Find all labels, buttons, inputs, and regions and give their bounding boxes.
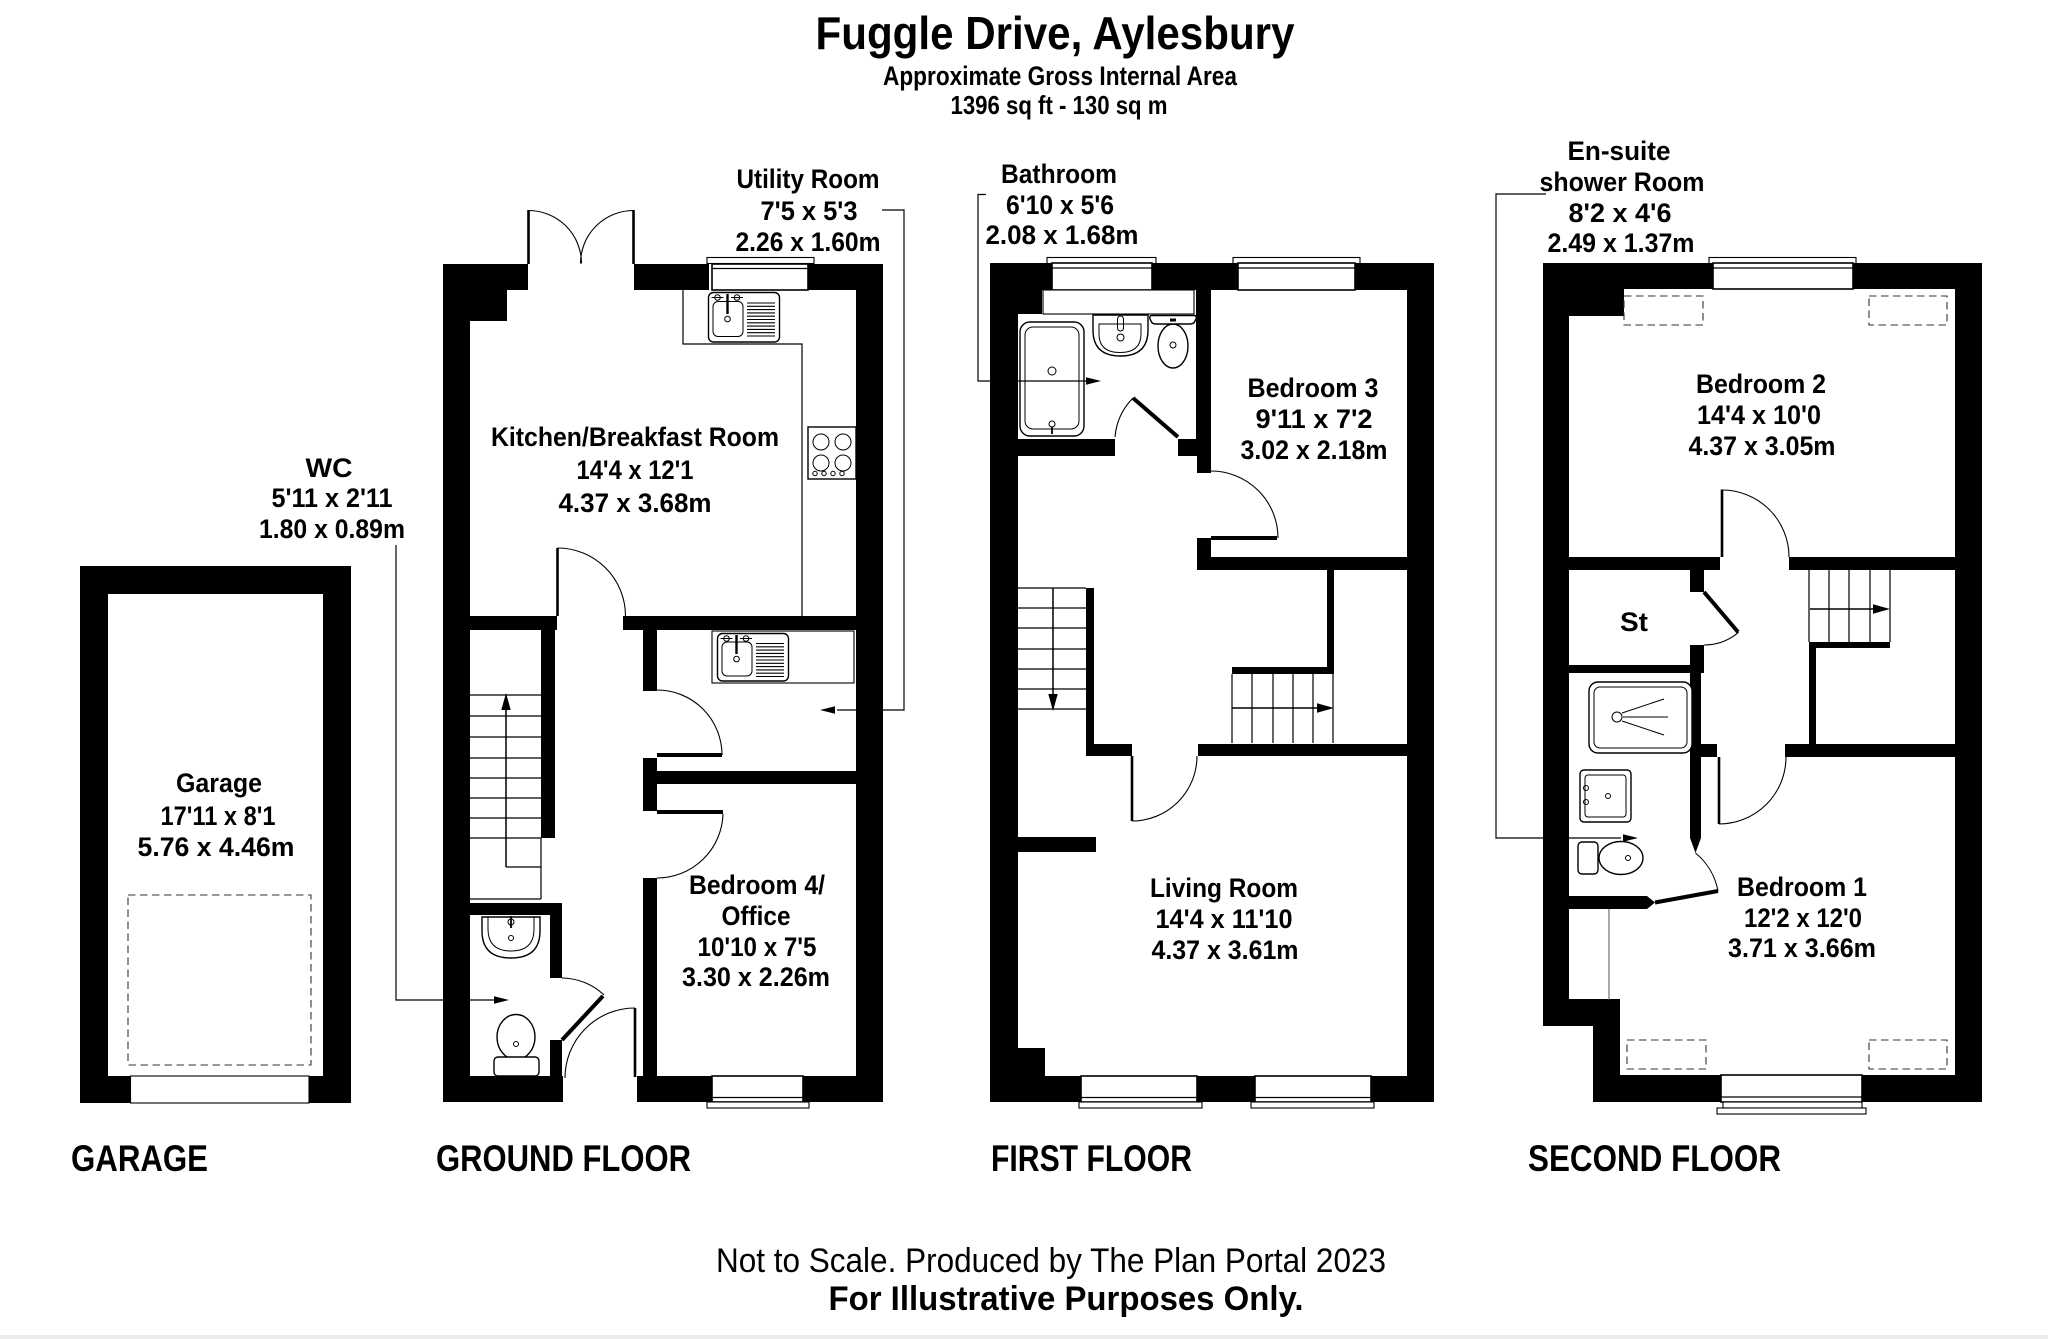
svg-text:shower Room: shower Room xyxy=(1540,167,1705,197)
svg-text:3.71 x 3.66m: 3.71 x 3.66m xyxy=(1728,933,1876,963)
svg-text:5'11 x 2'11: 5'11 x 2'11 xyxy=(272,483,393,513)
svg-text:2.26 x 1.60m: 2.26 x 1.60m xyxy=(736,227,881,257)
svg-text:Bedroom 1: Bedroom 1 xyxy=(1737,872,1867,902)
svg-text:Bedroom 4/: Bedroom 4/ xyxy=(689,870,825,900)
svg-text:WC: WC xyxy=(306,453,353,483)
svg-text:3.30 x 2.26m: 3.30 x 2.26m xyxy=(682,962,830,992)
svg-text:3.02 x 2.18m: 3.02 x 2.18m xyxy=(1241,435,1388,465)
svg-text:Bedroom 2: Bedroom 2 xyxy=(1696,369,1826,399)
svg-text:1.80 x 0.89m: 1.80 x 0.89m xyxy=(259,514,405,544)
svg-text:1396 sq ft - 130 sq m: 1396 sq ft - 130 sq m xyxy=(951,90,1168,120)
svg-text:9'11 x 7'2: 9'11 x 7'2 xyxy=(1256,404,1373,434)
svg-text:Utility Room: Utility Room xyxy=(737,164,880,194)
svg-text:14'4 x 12'1: 14'4 x 12'1 xyxy=(577,455,694,485)
svg-text:4.37 x 3.61m: 4.37 x 3.61m xyxy=(1152,935,1299,965)
svg-text:10'10 x 7'5: 10'10 x 7'5 xyxy=(698,932,817,962)
svg-text:17'11 x 8'1: 17'11 x 8'1 xyxy=(161,801,276,831)
svg-text:SECOND FLOOR: SECOND FLOOR xyxy=(1528,1138,1781,1179)
svg-text:Kitchen/Breakfast Room: Kitchen/Breakfast Room xyxy=(491,422,779,452)
svg-text:Fuggle Drive, Aylesbury: Fuggle Drive, Aylesbury xyxy=(816,7,1295,59)
svg-text:2.08 x 1.68m: 2.08 x 1.68m xyxy=(986,220,1139,250)
svg-text:Approximate Gross Internal Are: Approximate Gross Internal Area xyxy=(883,61,1238,91)
svg-text:GROUND FLOOR: GROUND FLOOR xyxy=(436,1138,691,1179)
svg-text:5.76 x 4.46m: 5.76 x 4.46m xyxy=(138,832,295,862)
svg-text:14'4 x 10'0: 14'4 x 10'0 xyxy=(1697,400,1821,430)
svg-text:Bathroom: Bathroom xyxy=(1001,159,1117,189)
svg-text:14'4 x 11'10: 14'4 x 11'10 xyxy=(1156,904,1293,934)
svg-text:St: St xyxy=(1620,607,1648,637)
svg-text:7'5 x 5'3: 7'5 x 5'3 xyxy=(761,196,858,226)
svg-text:Living Room: Living Room xyxy=(1150,873,1298,903)
svg-text:Garage: Garage xyxy=(176,768,262,798)
svg-text:Bedroom 3: Bedroom 3 xyxy=(1248,373,1379,403)
svg-text:4.37 x 3.05m: 4.37 x 3.05m xyxy=(1689,431,1836,461)
svg-text:FIRST FLOOR: FIRST FLOOR xyxy=(991,1138,1192,1179)
svg-text:En-suite: En-suite xyxy=(1568,136,1671,166)
svg-text:GARAGE: GARAGE xyxy=(71,1138,208,1179)
svg-text:2.49 x 1.37m: 2.49 x 1.37m xyxy=(1548,228,1695,258)
svg-text:12'2 x 12'0: 12'2 x 12'0 xyxy=(1744,903,1862,933)
svg-text:Not to Scale. Produced by The: Not to Scale. Produced by The Plan Porta… xyxy=(716,1242,1386,1280)
svg-text:4.37 x 3.68m: 4.37 x 3.68m xyxy=(559,488,712,518)
svg-text:8'2 x 4'6: 8'2 x 4'6 xyxy=(1569,198,1672,228)
svg-text:6'10 x 5'6: 6'10 x 5'6 xyxy=(1006,190,1114,220)
svg-text:For Illustrative Purposes Only: For Illustrative Purposes Only. xyxy=(829,1280,1304,1318)
svg-text:Office: Office xyxy=(722,901,791,931)
